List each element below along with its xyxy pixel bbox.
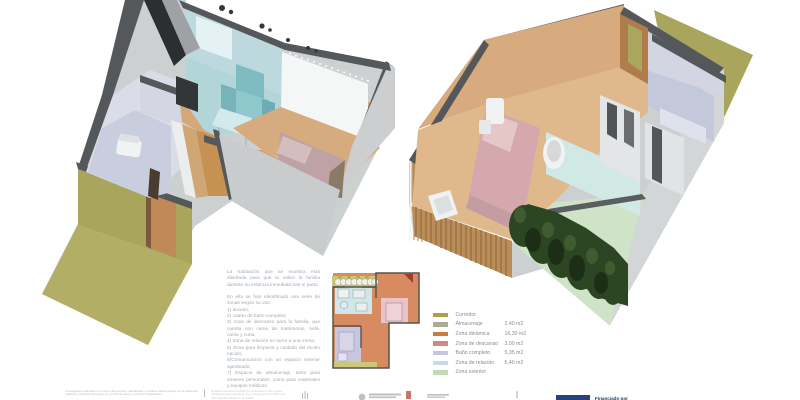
svg-text:Financiado por: Financiado por: [595, 396, 628, 400]
